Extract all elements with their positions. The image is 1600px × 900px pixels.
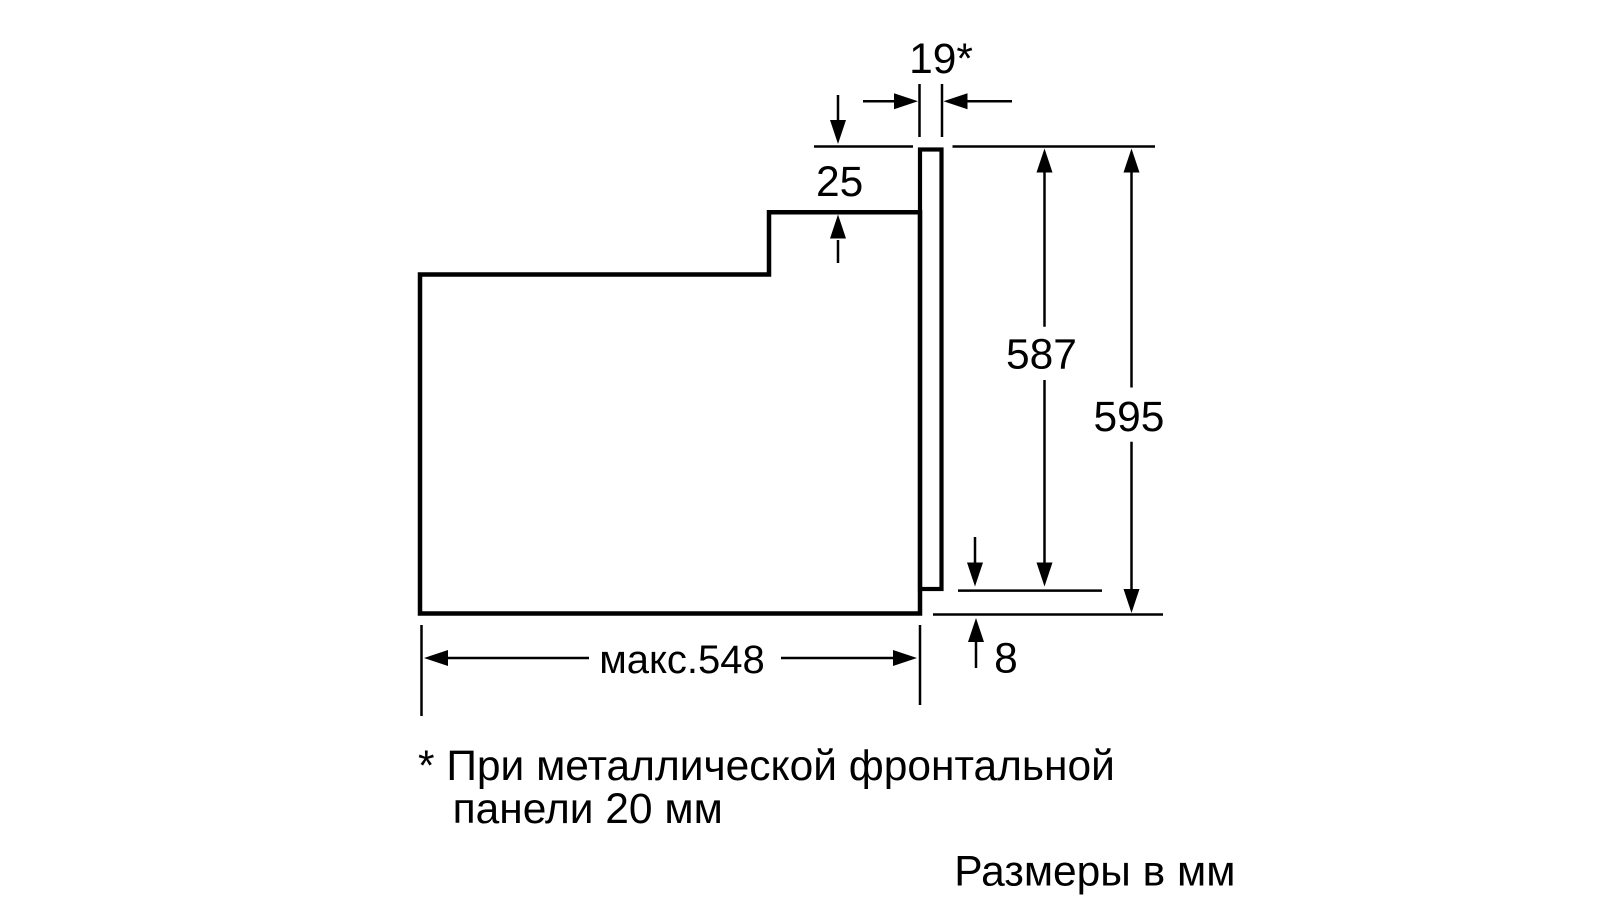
svg-text:8: 8 [994, 636, 1018, 683]
svg-text:панели 20 мм: панели 20 мм [453, 786, 723, 833]
svg-text:Размеры в мм: Размеры в мм [954, 849, 1235, 896]
svg-text:25: 25 [816, 159, 863, 206]
svg-text:19*: 19* [909, 36, 973, 83]
svg-text:587: 587 [1006, 331, 1077, 378]
svg-text:макс.548: макс.548 [599, 638, 765, 682]
svg-text:595: 595 [1094, 394, 1165, 441]
svg-text:* При металлической фронтально: * При металлической фронтальной [418, 743, 1115, 790]
